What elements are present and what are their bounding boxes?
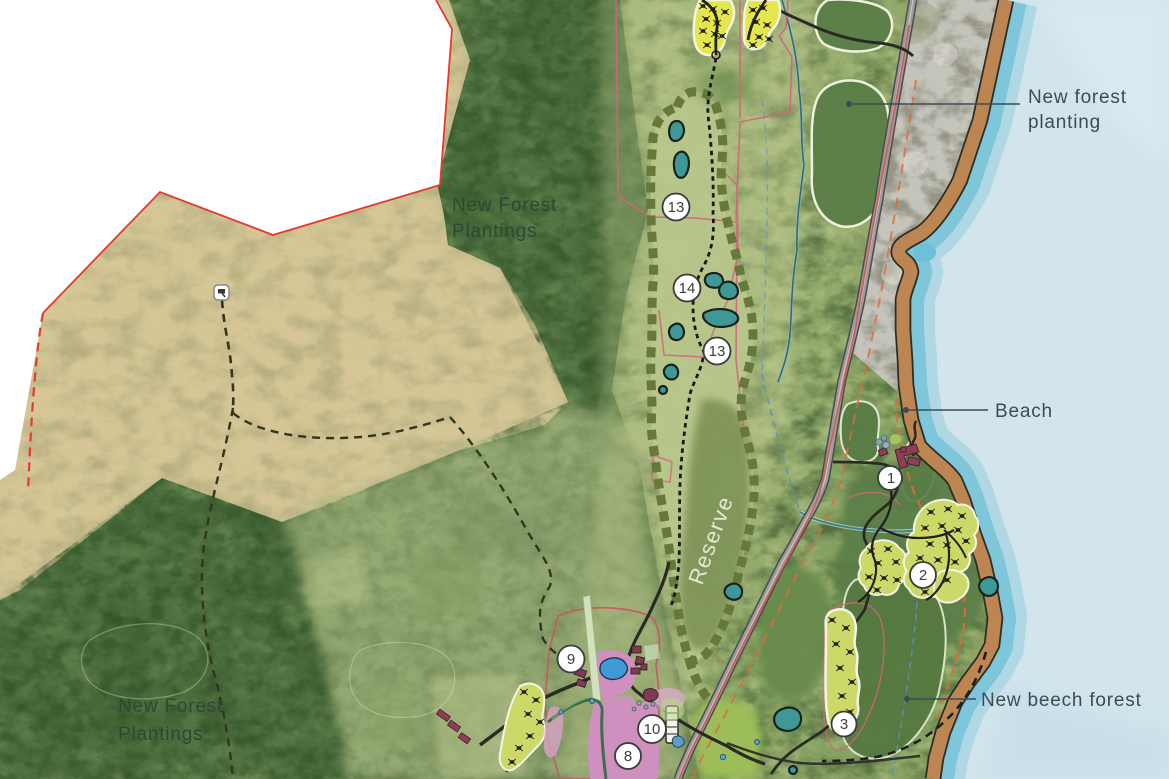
svg-text:New beech forest: New beech forest bbox=[981, 690, 1142, 711]
svg-text:1: 1 bbox=[887, 470, 895, 487]
svg-text:Beach: Beach bbox=[995, 401, 1053, 422]
svg-text:2: 2 bbox=[919, 567, 927, 584]
svg-text:New forest: New forest bbox=[1028, 87, 1127, 108]
svg-text:New Forest: New Forest bbox=[452, 195, 557, 216]
svg-text:14: 14 bbox=[679, 280, 696, 297]
svg-text:Plantings: Plantings bbox=[452, 221, 537, 242]
svg-text:13: 13 bbox=[709, 343, 726, 360]
svg-text:8: 8 bbox=[624, 748, 632, 765]
svg-text:New Forest: New Forest bbox=[118, 696, 223, 717]
svg-text:10: 10 bbox=[644, 721, 661, 738]
svg-text:9: 9 bbox=[567, 651, 575, 668]
svg-text:3: 3 bbox=[840, 716, 848, 733]
svg-text:Plantings: Plantings bbox=[118, 724, 203, 745]
svg-text:13: 13 bbox=[668, 199, 685, 216]
svg-text:planting: planting bbox=[1028, 112, 1101, 133]
